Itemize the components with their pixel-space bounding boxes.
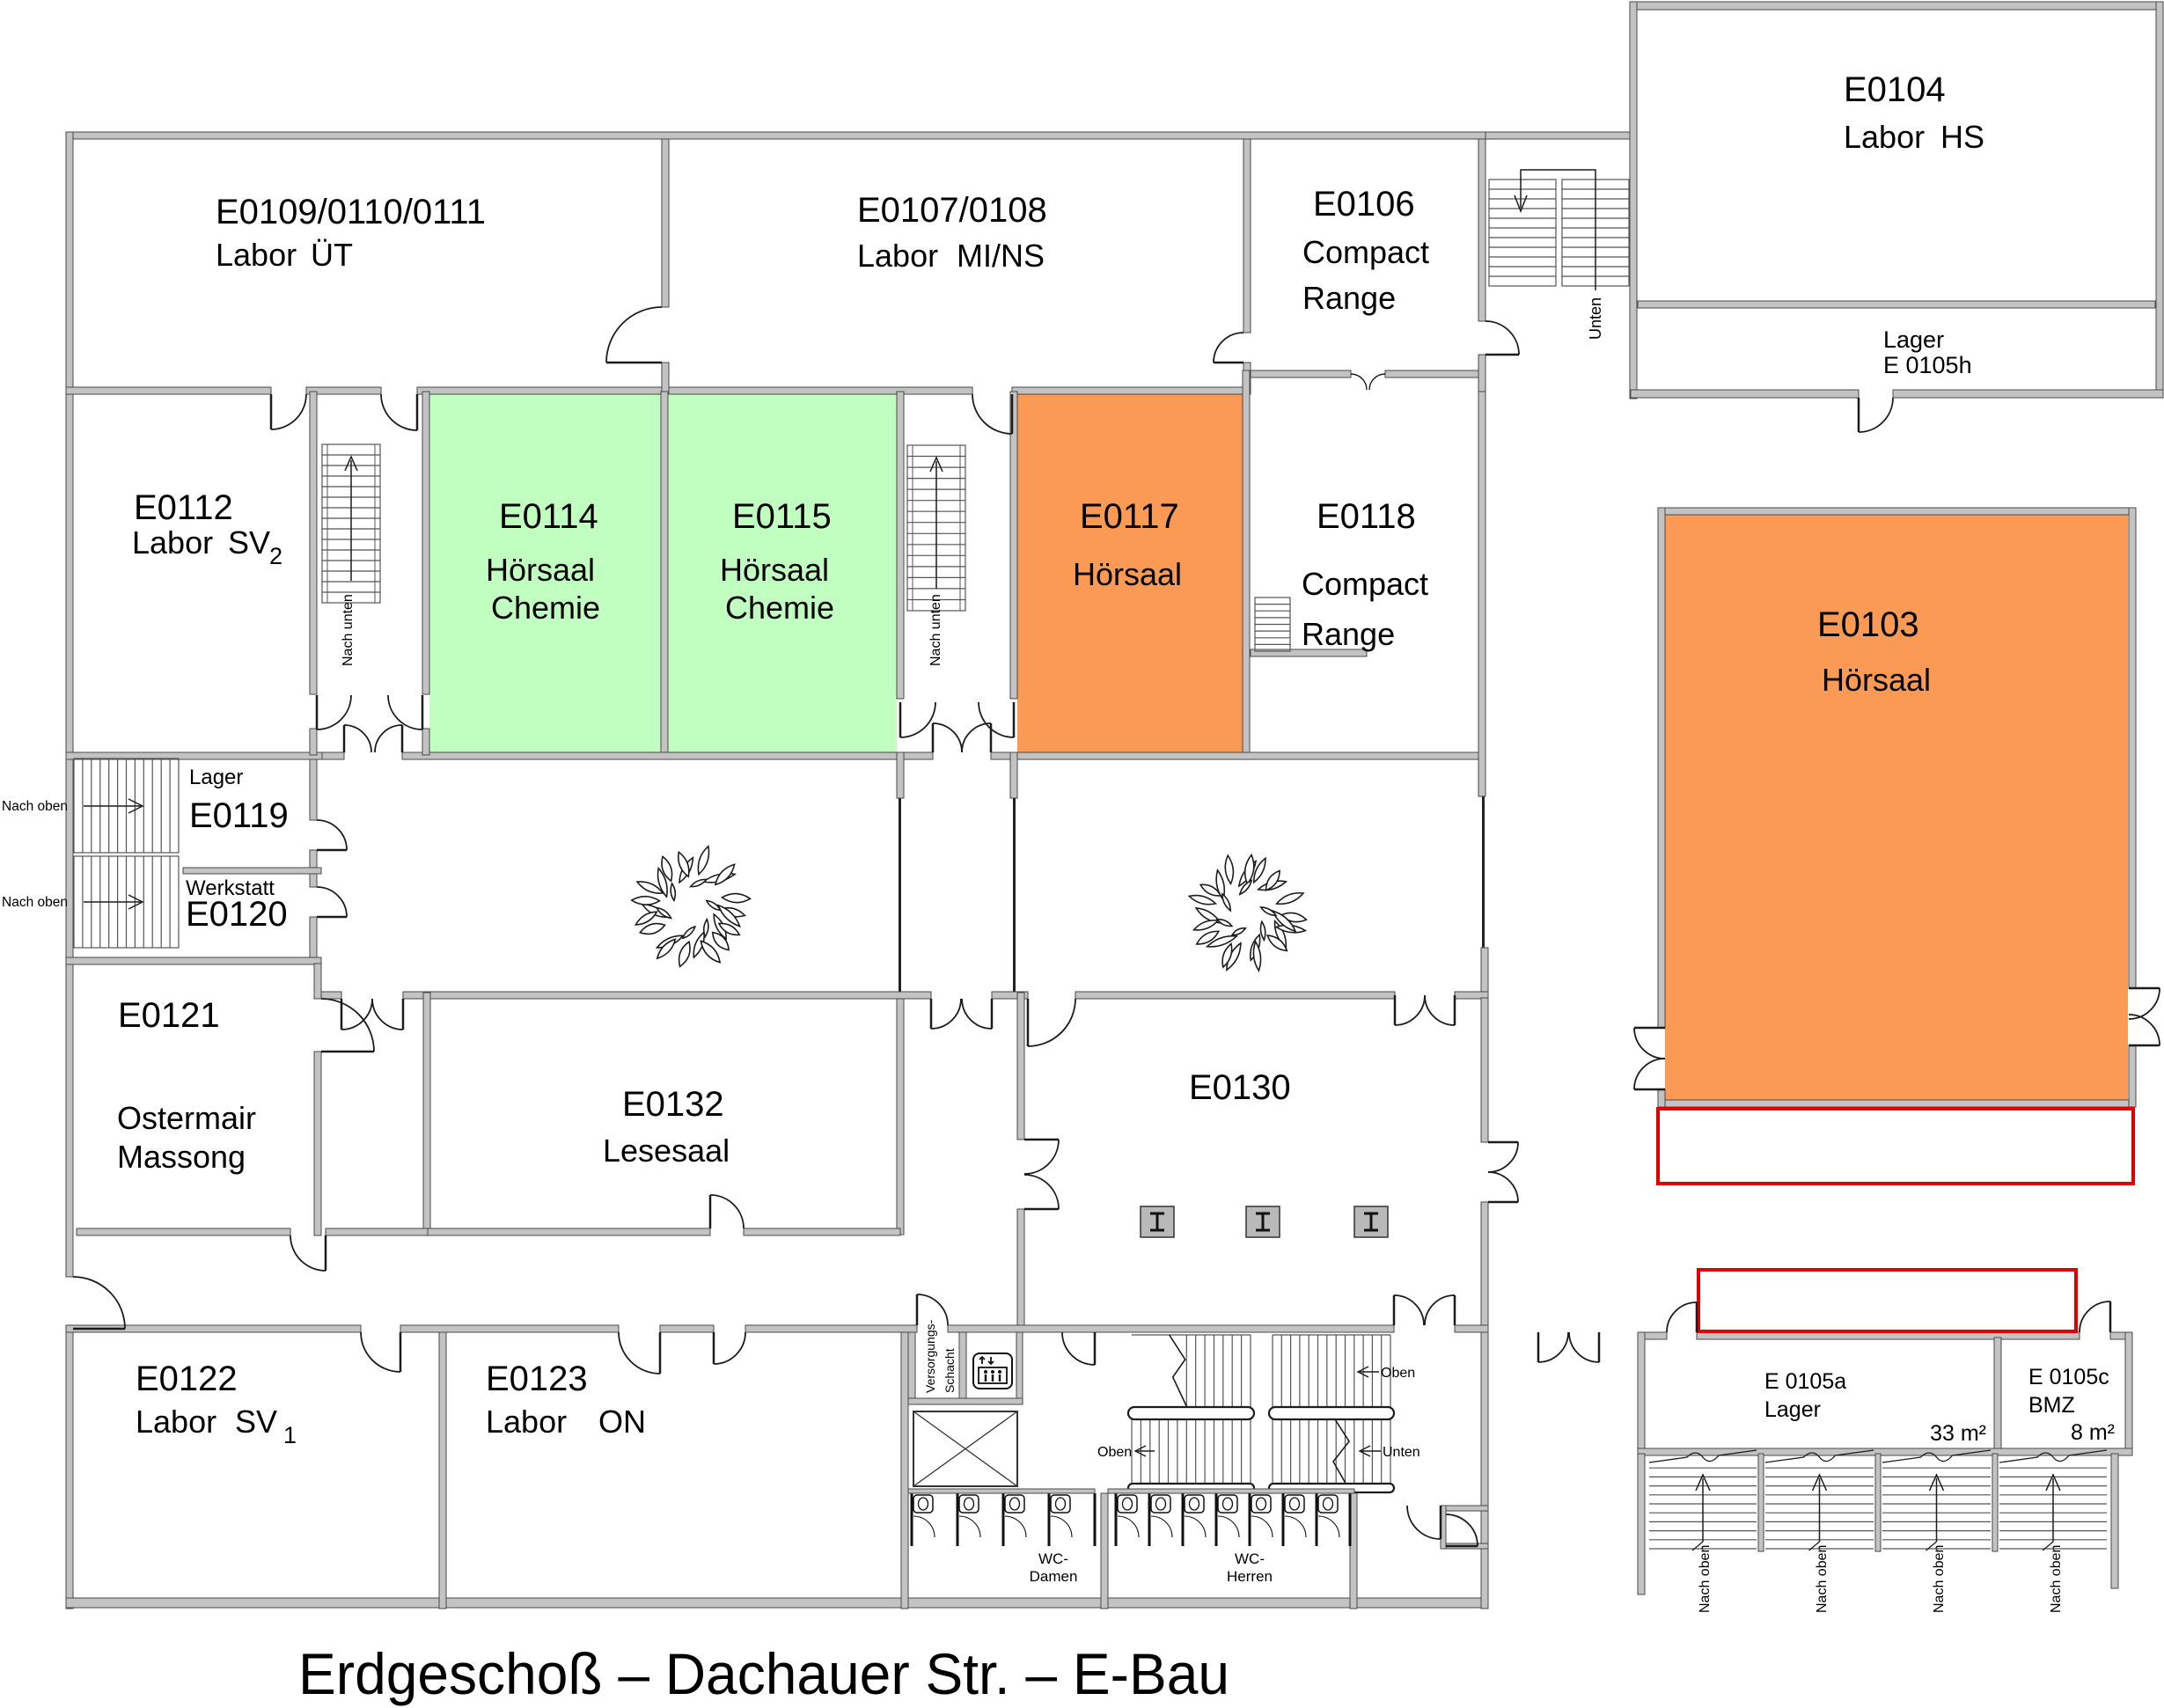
svg-text:E0123: E0123 [486,1360,588,1398]
svg-text:E0104: E0104 [1844,70,1946,109]
svg-text:Chemie: Chemie [725,590,834,626]
svg-text:WC-: WC- [1235,1550,1265,1567]
svg-text:Lesesaal: Lesesaal [603,1133,730,1169]
svg-text:Compact: Compact [1302,234,1429,270]
svg-text:Labor: Labor [1844,119,1925,155]
svg-text:Hörsaal: Hörsaal [486,552,595,588]
svg-text:E0122: E0122 [136,1360,238,1398]
svg-text:Chemie: Chemie [491,590,600,626]
svg-text:E 0105c: E 0105c [2028,1365,2109,1389]
svg-text:E0120: E0120 [186,895,288,934]
svg-text:E 0105a: E 0105a [1764,1369,1846,1394]
svg-text:Schacht: Schacht [943,1348,957,1393]
svg-text:E0106: E0106 [1313,185,1415,224]
svg-text:E0132: E0132 [622,1085,724,1124]
svg-text:Labor: Labor [132,524,213,561]
svg-text:E0118: E0118 [1317,497,1416,536]
svg-text:Nach oben: Nach oben [1932,1545,1947,1613]
svg-text:Versorgungs-: Versorgungs- [923,1319,937,1393]
svg-text:E0115: E0115 [732,497,832,536]
svg-text:SV: SV [235,1404,277,1440]
svg-text:2: 2 [269,543,282,569]
svg-text:Lager: Lager [189,766,243,789]
svg-text:E0109/0110/0111: E0109/0110/0111 [216,193,486,231]
svg-text:E 0105h: E 0105h [1883,352,1972,378]
svg-text:Herren: Herren [1227,1568,1273,1585]
svg-text:E0107/0108: E0107/0108 [857,191,1047,230]
svg-text:Nach unten: Nach unten [928,594,943,666]
svg-text:Massong: Massong [117,1139,246,1175]
svg-text:Labor: Labor [136,1404,216,1440]
svg-text:Lager: Lager [1883,326,1944,353]
svg-text:E0119: E0119 [189,796,289,835]
svg-text:Nach oben: Nach oben [1815,1545,1830,1613]
svg-text:Oben: Oben [1097,1445,1132,1460]
svg-text:Labor: Labor [486,1404,567,1440]
svg-text:Lager: Lager [1764,1397,1821,1422]
svg-text:BMZ: BMZ [2028,1393,2075,1418]
svg-text:Compact: Compact [1302,566,1428,602]
svg-text:Hörsaal: Hörsaal [1822,662,1931,698]
svg-text:Labor: Labor [857,238,938,274]
svg-text:Ostermair: Ostermair [117,1100,256,1136]
svg-text:MI/NS: MI/NS [957,238,1045,274]
svg-text:Hörsaal: Hörsaal [1073,556,1182,592]
svg-text:Nach oben: Nach oben [2,799,68,814]
svg-text:Oben: Oben [1381,1366,1415,1381]
svg-text:E0112: E0112 [134,488,233,527]
svg-text:Nach oben: Nach oben [1698,1545,1713,1613]
svg-text:Range: Range [1302,280,1396,316]
svg-text:Nach unten: Nach unten [341,594,356,666]
svg-text:33 m²: 33 m² [1930,1421,1986,1446]
svg-text:Unten: Unten [1587,297,1604,340]
svg-text:8 m²: 8 m² [2071,1420,2115,1445]
svg-text:Damen: Damen [1030,1568,1078,1585]
svg-text:Hörsaal: Hörsaal [720,552,829,588]
svg-text:Range: Range [1302,616,1395,652]
svg-text:SV: SV [228,524,270,561]
svg-text:E0117: E0117 [1080,497,1179,536]
svg-text:HS: HS [1940,119,1984,155]
svg-text:Nach oben: Nach oben [2049,1545,2064,1613]
svg-text:E0103: E0103 [1817,605,1919,644]
svg-text:E0121: E0121 [118,996,220,1035]
svg-text:Unten: Unten [1383,1445,1420,1460]
svg-text:E0130: E0130 [1189,1068,1291,1107]
svg-text:ÜT: ÜT [311,237,353,273]
svg-text:Labor: Labor [216,237,297,273]
svg-text:E0114: E0114 [499,497,598,536]
svg-text:1: 1 [283,1422,297,1448]
svg-text:Nach oben: Nach oben [2,895,68,910]
svg-text:WC-: WC- [1038,1550,1068,1567]
svg-text:Erdgeschoß – Dachauer Str. – E: Erdgeschoß – Dachauer Str. – E-Bau [298,1641,1229,1706]
svg-text:ON: ON [598,1404,646,1440]
